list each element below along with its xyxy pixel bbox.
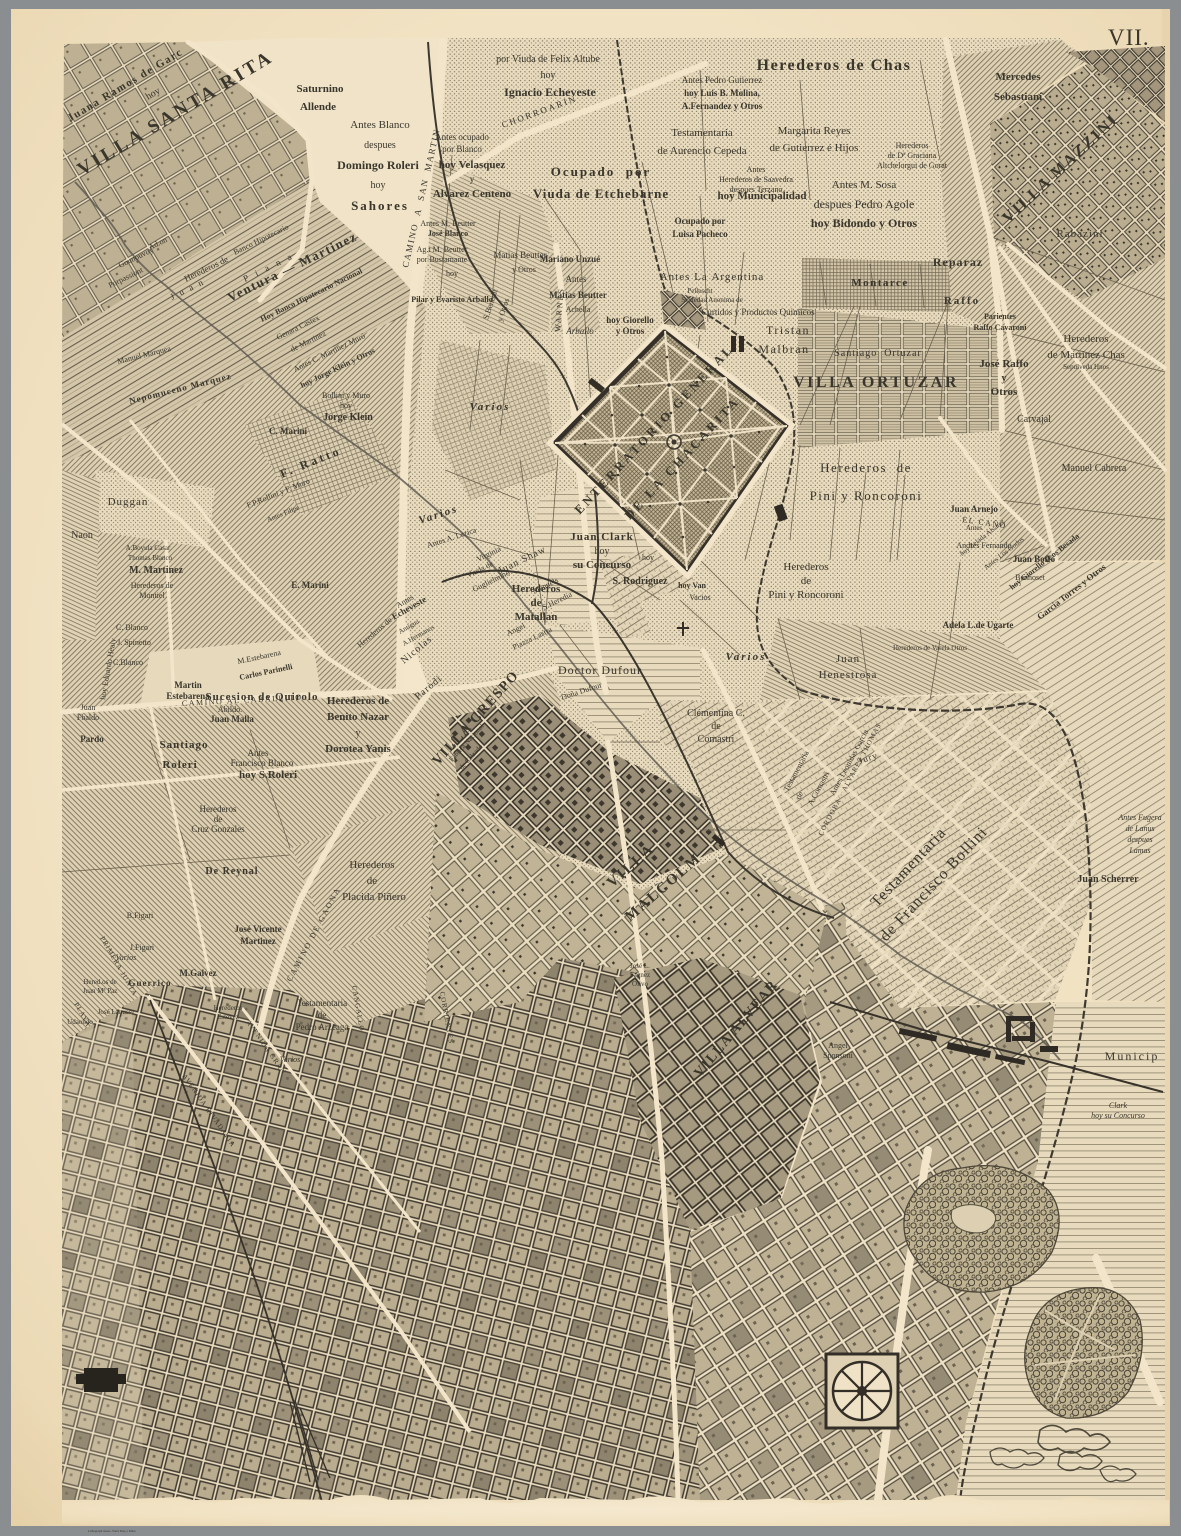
svg-text:José Blanco: José Blanco xyxy=(428,229,468,238)
svg-text:Varios: Varios xyxy=(470,401,511,413)
svg-text:Pedro Arzeaga: Pedro Arzeaga xyxy=(296,1022,349,1032)
svg-text:por Viuda de Felix Altube: por Viuda de Felix Altube xyxy=(496,54,600,65)
svg-text:Vacios: Vacios xyxy=(689,593,710,602)
svg-text:Carvajal: Carvajal xyxy=(1017,414,1051,425)
svg-text:hoy Van: hoy Van xyxy=(678,581,706,590)
svg-text:de: de xyxy=(531,597,542,609)
svg-text:Pardo: Pardo xyxy=(80,734,104,744)
svg-text:Herederos de: Herederos de xyxy=(131,581,174,590)
svg-text:Juan Malla: Juan Malla xyxy=(210,714,254,724)
svg-text:por Bustamante: por Bustamante xyxy=(417,255,468,264)
svg-text:Fbaldo: Fbaldo xyxy=(77,713,99,722)
svg-text:Ag.t M. Beutter: Ag.t M. Beutter xyxy=(417,245,468,254)
svg-text:Bollini y Muro: Bollini y Muro xyxy=(322,391,370,400)
svg-text:Testamentaria: Testamentaria xyxy=(671,127,733,139)
svg-text:Otros: Otros xyxy=(991,386,1018,398)
svg-text:Duggan: Duggan xyxy=(108,496,149,508)
svg-text:Antes Blanco: Antes Blanco xyxy=(350,119,410,131)
svg-text:C. Marini: C. Marini xyxy=(269,426,307,436)
svg-text:Doctor Dufour: Doctor Dufour xyxy=(558,663,642,677)
svg-text:Antes M. Beutter: Antes M. Beutter xyxy=(420,219,476,228)
svg-text:Ocupado por: Ocupado por xyxy=(551,164,652,179)
svg-text:Altchelorgui de Gorat: Altchelorgui de Gorat xyxy=(877,161,948,170)
svg-text:y: y xyxy=(470,174,475,184)
svg-text:despues: despues xyxy=(1127,835,1152,844)
svg-text:Naon: Naon xyxy=(71,530,93,541)
svg-text:de Martinez Chas: de Martinez Chas xyxy=(1047,349,1125,361)
svg-text:Herederos de Varela Otros: Herederos de Varela Otros xyxy=(893,644,967,652)
svg-text:de: de xyxy=(711,721,721,732)
svg-text:hoy: hoy xyxy=(642,553,654,562)
svg-text:despues Pedro Agole: despues Pedro Agole xyxy=(814,197,915,211)
svg-text:S. Rodriguez: S. Rodriguez xyxy=(613,576,669,587)
svg-text:Abildo.: Abildo. xyxy=(218,705,242,714)
svg-text:Herederos: Herederos xyxy=(214,1004,243,1012)
svg-text:hoy: hoy xyxy=(446,269,458,278)
svg-text:Santiago: Santiago xyxy=(160,739,209,751)
svg-text:Domingo Roleri: Domingo Roleri xyxy=(337,158,419,172)
svg-text:M. Martinez: M. Martinez xyxy=(129,565,183,576)
svg-text:José Raffo: José Raffo xyxy=(979,358,1029,370)
svg-text:y: y xyxy=(356,728,361,739)
svg-text:José Vicente: José Vicente xyxy=(234,924,281,934)
svg-text:Sponsoni: Sponsoni xyxy=(823,1051,854,1060)
svg-text:José Lanusse: José Lanusse xyxy=(98,1008,135,1016)
svg-text:Dorotea Yanis: Dorotea Yanis xyxy=(325,743,391,755)
svg-text:Allende: Allende xyxy=(300,101,336,113)
svg-text:hoy: hoy xyxy=(340,401,352,410)
svg-text:Antes M. Sosa: Antes M. Sosa xyxy=(832,179,897,191)
svg-text:B.Figari: B.Figari xyxy=(127,911,154,920)
svg-text:de Gutierrez é Hijos: de Gutierrez é Hijos xyxy=(770,142,859,154)
svg-text:de: de xyxy=(367,875,378,887)
svg-text:despues Terzano: despues Terzano xyxy=(730,185,783,194)
svg-text:de Aurencio Cepeda: de Aurencio Cepeda xyxy=(657,145,746,157)
svg-text:de: de xyxy=(214,814,223,824)
svg-text:Juan: Juan xyxy=(836,653,860,665)
svg-text:hoy Bidondo y Otros: hoy Bidondo y Otros xyxy=(811,216,917,230)
svg-text:Pilar y Evaristo Arballo: Pilar y Evaristo Arballo xyxy=(411,295,492,304)
svg-text:Parientes: Parientes xyxy=(984,312,1016,321)
svg-text:Malbran: Malbran xyxy=(758,342,809,356)
svg-text:Herederos: Herederos xyxy=(349,859,394,871)
svg-text:Herederos: Herederos xyxy=(783,561,828,573)
svg-text:Martinez: Martinez xyxy=(240,936,275,946)
svg-text:Henestrosa: Henestrosa xyxy=(819,669,878,681)
svg-text:Roleri: Roleri xyxy=(162,759,197,771)
svg-text:Jorge Klein: Jorge Klein xyxy=(323,412,373,423)
svg-text:Luisa Pacheco: Luisa Pacheco xyxy=(672,229,728,239)
svg-text:Antes ocupado: Antes ocupado xyxy=(435,132,489,142)
svg-text:Pini y Roncoroni: Pini y Roncoroni xyxy=(768,589,843,601)
svg-text:hoy: hoy xyxy=(541,70,556,81)
svg-text:VII.: VII. xyxy=(1108,25,1150,50)
svg-text:E. Marini: E. Marini xyxy=(291,580,329,590)
svg-text:Antes La Argentina: Antes La Argentina xyxy=(660,271,765,283)
svg-text:hoy su Concurso: hoy su Concurso xyxy=(1091,1111,1145,1120)
svg-text:Margarita Reyes: Margarita Reyes xyxy=(778,125,851,137)
svg-text:J. Spinetto: J. Spinetto xyxy=(117,638,151,647)
svg-text:Juan Mª Paz: Juan Mª Paz xyxy=(83,987,118,995)
svg-text:Sebastiani: Sebastiani xyxy=(994,91,1042,103)
svg-text:Montarce: Montarce xyxy=(851,277,909,289)
svg-text:Montiel: Montiel xyxy=(139,591,165,600)
svg-text:Pellescht: Pellescht xyxy=(687,287,712,295)
svg-text:Antes: Antes xyxy=(248,748,269,758)
svg-text:Alvarez Centeno: Alvarez Centeno xyxy=(433,188,512,200)
svg-text:Ocupado por: Ocupado por xyxy=(675,216,726,226)
svg-text:hoy Giorello: hoy Giorello xyxy=(606,315,654,325)
svg-text:de Lanus: de Lanus xyxy=(1125,824,1154,833)
svg-text:su Concurso: su Concurso xyxy=(573,559,632,571)
svg-text:Adela L.de Ugarte: Adela L.de Ugarte xyxy=(943,620,1014,630)
svg-text:por Blanco: por Blanco xyxy=(442,144,482,154)
svg-text:Achella: Achella xyxy=(566,305,591,314)
svg-text:Arballo: Arballo xyxy=(565,326,594,336)
svg-text:Matias Beutter: Matias Beutter xyxy=(493,250,546,260)
svg-text:Clark: Clark xyxy=(1109,1101,1128,1110)
svg-text:José L.: José L. xyxy=(630,962,650,970)
svg-text:Benito Nazar: Benito Nazar xyxy=(327,711,389,723)
svg-text:Fagnez: Fagnez xyxy=(630,971,650,979)
svg-text:Clémentina C.: Clémentina C. xyxy=(687,708,745,719)
svg-text:Municip: Municip xyxy=(1105,1049,1160,1063)
svg-text:Herederos de Saavedra: Herederos de Saavedra xyxy=(719,175,793,184)
svg-text:Herederos: Herederos xyxy=(200,804,237,814)
svg-text:C. Blanco: C. Blanco xyxy=(116,623,148,632)
svg-text:J.Figari: J.Figari xyxy=(130,943,155,952)
svg-text:Placida Piñero: Placida Piñero xyxy=(342,891,406,903)
svg-text:Sociedad Anonima de: Sociedad Anonima de xyxy=(681,296,742,304)
svg-text:M.Galvez: M.Galvez xyxy=(179,968,216,978)
svg-text:Santiago Ortuzar: Santiago Ortuzar xyxy=(834,348,922,359)
svg-text:De Reynal: De Reynal xyxy=(205,866,258,877)
svg-text:Testamentaria: Testamentaria xyxy=(297,998,347,1008)
svg-text:Cruz Gonzales: Cruz Gonzales xyxy=(191,824,245,834)
svg-text:y Otros: y Otros xyxy=(616,326,645,336)
svg-text:Herederos de Chas: Herederos de Chas xyxy=(757,57,912,74)
svg-text:y: y xyxy=(1002,373,1007,384)
svg-text:Olivo: Olivo xyxy=(632,980,648,988)
svg-text:Juan Arnejo: Juan Arnejo xyxy=(950,504,998,514)
svg-text:hoy: hoy xyxy=(595,546,610,557)
svg-text:Raffo: Raffo xyxy=(944,295,980,307)
svg-text:Comastri: Comastri xyxy=(698,734,735,745)
svg-text:Martin: Martin xyxy=(174,680,202,690)
svg-text:Sahores: Sahores xyxy=(351,198,409,213)
svg-text:hoy Luis B. Molina,: hoy Luis B. Molina, xyxy=(684,88,760,98)
svg-text:despues: despues xyxy=(364,140,396,151)
svg-text:Francisco Blanco: Francisco Blanco xyxy=(231,758,294,768)
svg-text:Lithograph issues. Ward Map y: Lithograph issues. Ward Map y Mitre xyxy=(88,1529,136,1533)
svg-text:hoy S.Roleri: hoy S.Roleri xyxy=(239,769,297,781)
svg-text:Antes: Antes xyxy=(566,274,587,284)
svg-text:Sepulveda Hnos: Sepulveda Hnos xyxy=(1063,363,1109,371)
svg-text:Hered.os de: Hered.os de xyxy=(83,978,116,986)
svg-text:de: de xyxy=(801,575,812,587)
svg-text:A.Fernandez y Otros: A.Fernandez y Otros xyxy=(682,101,763,111)
svg-text:C.Blanco: C.Blanco xyxy=(113,658,143,667)
svg-text:Curtidos y Productos Quimicos: Curtidos y Productos Quimicos xyxy=(701,307,815,317)
svg-text:Mariano Unzué: Mariano Unzué xyxy=(540,254,600,264)
svg-text:Antes: Antes xyxy=(747,165,766,174)
svg-text:Juan Scherrer: Juan Scherrer xyxy=(1077,874,1139,885)
svg-text:Herederos: Herederos xyxy=(1063,333,1108,345)
svg-text:Angel: Angel xyxy=(828,1041,848,1050)
svg-text:Manuel Cabrera: Manuel Cabrera xyxy=(1062,463,1127,474)
svg-text:Herederos: Herederos xyxy=(896,141,929,150)
svg-text:Ignacio Echeveste: Ignacio Echeveste xyxy=(504,85,596,99)
svg-text:Herederos de: Herederos de xyxy=(820,460,912,475)
svg-text:Estevez: Estevez xyxy=(217,1013,239,1021)
svg-text:Mercedes: Mercedes xyxy=(996,71,1042,83)
svg-text:Viuda de Etchebarne: Viuda de Etchebarne xyxy=(533,186,669,201)
svg-text:VILLA ORTUZAR: VILLA ORTUZAR xyxy=(793,374,959,391)
svg-text:Varios: Varios xyxy=(726,651,767,663)
svg-text:Antes Fugera: Antes Fugera xyxy=(1117,813,1161,822)
svg-text:Herederos de: Herederos de xyxy=(327,695,389,707)
svg-text:de: de xyxy=(318,1010,327,1020)
svg-text:Rabazini: Rabazini xyxy=(1056,228,1103,240)
svg-text:Juan: Juan xyxy=(81,703,96,712)
svg-text:Juan Clark: Juan Clark xyxy=(570,531,634,543)
svg-text:Antes Pedro Gutierrez: Antes Pedro Gutierrez xyxy=(682,75,762,85)
svg-text:Raffo Cavaroni: Raffo Cavaroni xyxy=(974,323,1028,332)
svg-text:hoy Velasquez: hoy Velasquez xyxy=(439,159,506,171)
svg-text:Pini y Roncoroni: Pini y Roncoroni xyxy=(810,488,923,503)
svg-text:Thomas Blanco: Thomas Blanco xyxy=(128,554,173,562)
svg-text:A.Boyula Casar: A.Boyula Casar xyxy=(126,544,171,552)
svg-text:de Dª Graciana: de Dª Graciana xyxy=(888,151,937,160)
svg-text:hoy: hoy xyxy=(371,180,386,191)
svg-text:Lamas: Lamas xyxy=(1128,846,1150,855)
svg-text:Saturnino: Saturnino xyxy=(296,83,344,95)
svg-text:Reparaz: Reparaz xyxy=(933,255,983,269)
svg-text:Tristan: Tristan xyxy=(766,323,810,337)
svg-text:y Otros: y Otros xyxy=(512,265,536,274)
